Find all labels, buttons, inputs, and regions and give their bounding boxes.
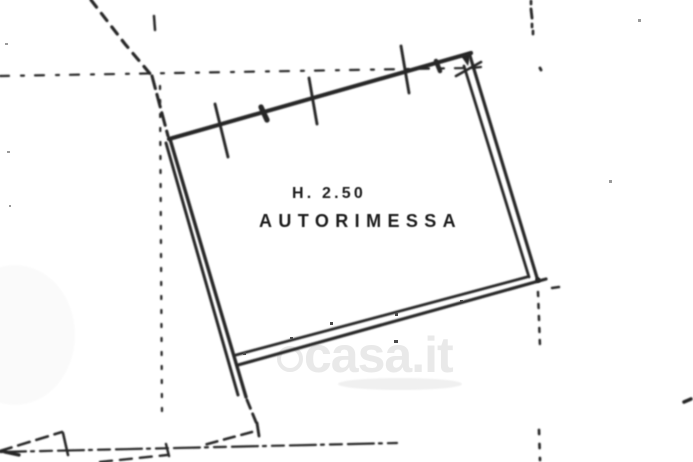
svg-text:AUTORIMESSA: AUTORIMESSA (259, 211, 462, 231)
svg-text:H. 2.50: H. 2.50 (292, 185, 366, 202)
svg-text:casa.it: casa.it (304, 327, 454, 383)
